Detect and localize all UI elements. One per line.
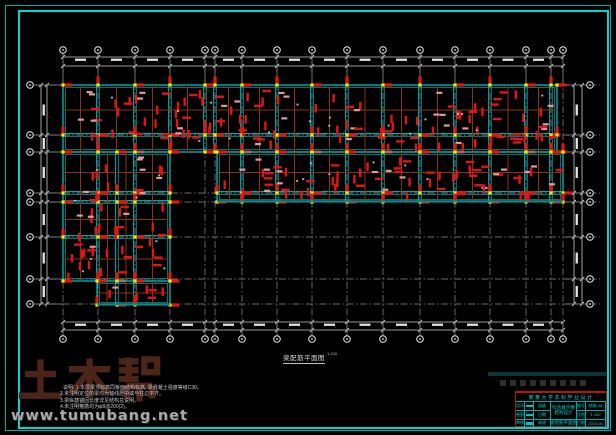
tb-label: 成绩: [534, 419, 551, 427]
tb-signature: [525, 410, 534, 418]
tb-value: 1:100: [586, 410, 606, 418]
tb-label: 审核: [516, 419, 525, 427]
tb-sheet-name: 梁配筋平面图: [551, 419, 577, 427]
tb-label: 日期: [534, 410, 551, 418]
tb-label: 班级: [534, 402, 551, 410]
ghost-band: [488, 372, 606, 376]
tb-value: 结施-08: [586, 402, 606, 410]
tb-label: 比例: [577, 410, 586, 418]
tb-label: 日期: [577, 419, 586, 427]
signature-smudge: [526, 405, 533, 408]
signature-smudge: [526, 414, 533, 417]
tb-label: 图号: [577, 402, 586, 410]
tb-value: 2015.06: [586, 419, 606, 427]
tb-label: 设计: [516, 402, 525, 410]
drawing-scale: 1:100: [327, 351, 337, 356]
drawing-title-group: 梁配筋平面图 1:100: [283, 352, 337, 364]
drawing-title: 梁配筋平面图: [283, 352, 325, 364]
tb-label: 制图: [516, 410, 525, 418]
notes-block: 说明: 1.本层梁顶标高同板面结构标高, 梁混凝土强度等级C30。 2.未注明定…: [60, 385, 290, 411]
cad-drawing-canvas: www.tumubang.net 说明: 1.本层梁顶标高同板面结构标高, 梁混…: [0, 0, 616, 435]
title-block-table: 设计 班级 综合教学楼结构设计 图号 结施-08 制图 日期 比例 1:100 …: [516, 402, 606, 427]
tb-project-name: 综合教学楼结构设计: [551, 402, 577, 419]
ghost-text-smudge: [500, 380, 586, 386]
watermark-char-tu: [19, 359, 62, 395]
title-block: 某某大学本科毕业设计 设计 班级 综合教学楼结构设计 图号 结施-08 制图 日…: [515, 391, 607, 427]
signature-smudge: [526, 422, 533, 425]
tb-signature: [525, 419, 534, 427]
tb-signature: [525, 402, 534, 410]
watermark-url: www.tumubang.net: [11, 408, 188, 424]
title-block-header: 某某大学本科毕业设计: [516, 393, 606, 402]
